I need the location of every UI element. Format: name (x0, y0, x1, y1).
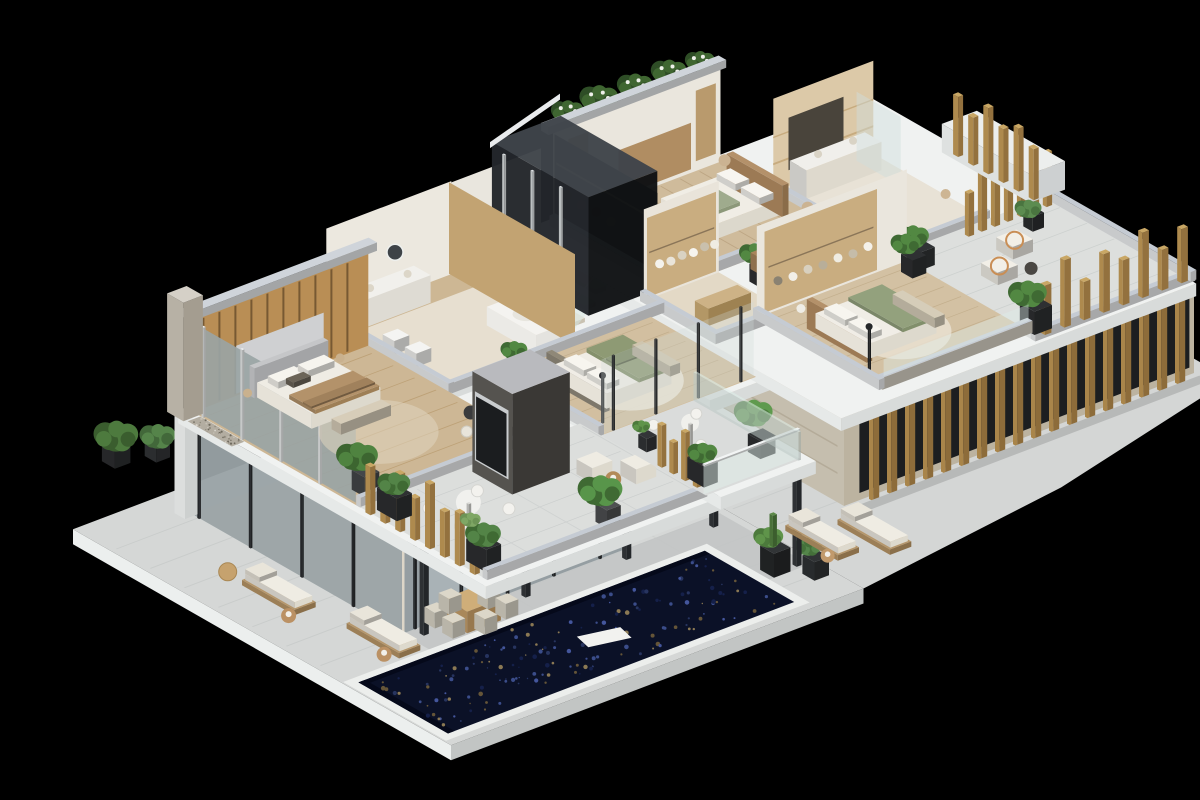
pool-ripples (753, 609, 757, 613)
parapet-plants-2 (601, 91, 605, 95)
bedroom-4-plant (909, 241, 919, 251)
pool-ripples (624, 645, 629, 650)
parapet-plants-4 (671, 65, 675, 69)
drum-table (719, 154, 731, 166)
terrace-palm (605, 486, 620, 501)
pool-ripples (439, 669, 441, 671)
cactus-tall (770, 514, 773, 547)
terrace-slats (1084, 280, 1091, 321)
pool-ripples (558, 631, 560, 633)
pool-ripples (579, 673, 581, 675)
pool-ripples (576, 664, 579, 667)
bedroom-4-clothes-4 (819, 261, 828, 270)
facade-louvers (1107, 320, 1113, 412)
terrace-slats (1123, 258, 1130, 306)
pebbles (205, 423, 207, 425)
pool-ripples (625, 610, 630, 615)
pool-ripples (474, 649, 478, 653)
bedroom-4-clothes-5 (834, 253, 843, 262)
pool-ripples (734, 580, 737, 583)
pebbles (208, 429, 210, 431)
glass-left-frames (249, 457, 251, 549)
nightstand-2 (336, 353, 345, 362)
pool-ripples (519, 677, 520, 678)
pool-ripples (765, 595, 768, 598)
facade-louvers (905, 395, 909, 487)
bedroom-4-clothes-2 (789, 272, 798, 281)
pebbles (214, 426, 216, 428)
terrace-slats (1080, 280, 1084, 321)
pebbles (208, 424, 210, 426)
pool-ripples (525, 654, 526, 655)
terrace-end-slats (1034, 147, 1039, 200)
upper-terrace-slats (445, 510, 450, 558)
pool-ripples (615, 612, 618, 615)
pool-ripples (452, 674, 455, 677)
pool-ripples (426, 683, 429, 686)
pool-ripples (691, 561, 694, 564)
pool-ripples (546, 651, 550, 655)
pool-ripples (589, 667, 593, 671)
pool-ripples (722, 593, 724, 595)
terrace-slats (1103, 252, 1110, 313)
pool-ripples (581, 627, 583, 629)
pebbles (230, 440, 231, 441)
pool-ripples (444, 698, 447, 701)
balcony-slats (669, 441, 673, 475)
pebbles (199, 424, 201, 426)
pool-ripples (636, 606, 639, 609)
pool-ripples (639, 652, 642, 655)
bedroom-3-headboard (782, 183, 788, 217)
terrace-plant (1032, 290, 1045, 303)
terrace-slats-2 (965, 191, 969, 236)
pebbles (193, 421, 195, 423)
terrace-end-slats (1014, 126, 1019, 192)
pool-ripples (554, 640, 556, 642)
pebbles (209, 427, 211, 429)
pebbles (225, 441, 227, 443)
pool-ripples (773, 603, 775, 605)
balcony-slats (674, 441, 679, 474)
bedroom-3-niche-2 (696, 83, 716, 161)
pool-ripples (659, 644, 662, 647)
pool-ripples (485, 654, 489, 658)
facade-louvers (927, 389, 933, 481)
pool-ripples (532, 672, 536, 676)
terrace-plant (1010, 289, 1024, 303)
bedroom-2-glass-frames (739, 307, 741, 383)
bedroom-4-plant (892, 241, 902, 251)
cactus-tall (773, 514, 777, 547)
pebbles (220, 428, 221, 429)
pool-ripples (633, 602, 636, 605)
pebbles (205, 419, 207, 421)
pebbles (219, 429, 220, 430)
pool-ripples (704, 565, 706, 567)
pool-ripples (467, 695, 470, 698)
pebbles (200, 418, 202, 420)
stone-chimney (183, 295, 203, 421)
pool-ripples (469, 703, 470, 704)
pool-ripples (432, 713, 435, 716)
glass-left-frames (354, 516, 356, 607)
terrace-plant-3 (1031, 206, 1040, 215)
pool-ripples (527, 678, 528, 679)
pool-ripples (495, 673, 497, 675)
glass-left-frames (199, 428, 201, 519)
pool-ripples (453, 666, 457, 670)
parapet-plants-2 (589, 92, 593, 96)
balcony-slats (658, 423, 662, 467)
upper-terrace-slats (365, 464, 370, 515)
vanity-basin-2 (404, 270, 412, 278)
terrace-end-slats (988, 106, 993, 174)
pool-ripples (545, 663, 550, 668)
nightstand (243, 389, 252, 398)
facade-louvers (1031, 347, 1035, 439)
pool-ripples (500, 648, 502, 650)
facade-louvers (887, 402, 891, 494)
pool-ripples (734, 617, 736, 619)
closet-clothes-3 (678, 251, 687, 260)
garden-shrub (121, 432, 136, 447)
pool-ripples (669, 602, 672, 605)
balcony-slats (662, 424, 667, 468)
facade-louvers (923, 388, 927, 480)
upper-terrace-slats (440, 509, 445, 557)
facade-louvers (873, 409, 879, 501)
facade-louvers (1143, 306, 1149, 398)
pool-ripples (567, 649, 571, 653)
bedroom-4-clothes-6 (849, 249, 858, 258)
cactus (755, 534, 765, 544)
garden-shrub-2 (142, 432, 154, 444)
facade-louvers (1067, 334, 1071, 426)
parapet-plants (569, 105, 573, 109)
balcony-table-stem (690, 424, 693, 445)
pool-ripples (547, 673, 551, 677)
balcony-plant (689, 450, 699, 460)
parapet-plants-4 (660, 66, 664, 70)
balcony-slats (681, 430, 685, 481)
terrace-side-table (1025, 262, 1038, 275)
upper-terrace-slats (415, 497, 420, 541)
pool-ripples (699, 617, 703, 621)
pool-ripples (678, 577, 681, 580)
parapet-plants-3 (637, 78, 641, 82)
corner-pier (175, 412, 186, 519)
pool-ripples (743, 590, 747, 594)
pool-ripples (504, 680, 507, 683)
pebbles (227, 436, 229, 438)
terrace-slats (1060, 258, 1064, 328)
pool-ripples (663, 627, 666, 630)
closet-clothes-5 (700, 242, 709, 251)
facade-louvers (981, 368, 987, 460)
pool-ripples (708, 579, 710, 581)
balcony-plant (706, 450, 716, 460)
pool-ripples (609, 602, 611, 604)
pool-ripples (681, 592, 685, 596)
facade-louvers (1071, 334, 1077, 426)
bedroom-1-palm (339, 452, 354, 467)
pool-ripples (484, 708, 486, 710)
pool-ripples (472, 656, 475, 659)
parapet-plants (559, 106, 563, 110)
facade-louvers (1049, 341, 1053, 433)
pool-ripples (718, 591, 722, 595)
pool-ripples (393, 691, 397, 695)
pool-ripples (528, 643, 530, 645)
pebbles (234, 442, 236, 444)
terrace-slats (1064, 258, 1071, 328)
bedroom-4-clothes (774, 276, 783, 285)
pool-ripples (716, 601, 718, 603)
pebbles (238, 439, 239, 440)
glass-left-frames (300, 486, 302, 578)
pool-ripples (674, 625, 678, 629)
bath-2-basin (814, 150, 822, 158)
facade-louvers (1139, 306, 1143, 398)
bedroom-4-stub-wall (879, 378, 885, 390)
pool-ripples (596, 655, 599, 658)
facade-louvers (1053, 341, 1059, 433)
terrace-slats (1158, 248, 1162, 291)
side-table-2-deco (381, 650, 387, 656)
pool-ripples (581, 643, 585, 647)
pebbles (224, 436, 226, 438)
pool-ripples (685, 569, 687, 571)
terrace-palm (580, 486, 596, 502)
pool-ripples (659, 600, 661, 602)
pool-ripples (602, 594, 606, 598)
facade-louvers (1175, 293, 1179, 385)
pool-ripples (480, 686, 484, 690)
pool-ripples (426, 714, 430, 718)
bath-2-stool (941, 189, 951, 199)
pool-ripples (489, 646, 491, 648)
terrace-end-slats (953, 94, 958, 157)
upper-terrace-plant-2 (487, 531, 499, 543)
pool-ripples (481, 661, 483, 663)
pool-ripples (703, 613, 705, 615)
facade-louvers (963, 375, 969, 467)
pool-ripples (710, 586, 714, 590)
isometric-villa-floorplan-render (0, 0, 1200, 800)
pool-ripples (712, 569, 714, 571)
facade-louvers (1089, 327, 1095, 419)
pool-ripples (688, 628, 691, 631)
pool-ripples (485, 701, 488, 704)
pool-ripples (484, 644, 486, 646)
pool-ripples (444, 692, 446, 694)
pebbles (222, 437, 224, 439)
glass-left-frames (197, 427, 199, 519)
pebbles (230, 443, 232, 445)
pebbles (238, 440, 240, 442)
pool-ripples (585, 658, 587, 660)
bedroom-2-glass-frames (612, 355, 614, 431)
bedroom-4-clothes-3 (804, 265, 813, 274)
pool-ripples (721, 584, 723, 586)
pool-ripples (488, 661, 490, 663)
facade-louvers (1013, 354, 1017, 446)
pool-ripples (687, 591, 690, 594)
pool-ripples (487, 667, 488, 668)
pool-ripples (518, 683, 520, 685)
pool-ripples (535, 643, 538, 646)
facade-louvers (941, 382, 945, 474)
pool-ripples (702, 603, 703, 604)
pool-ripples (685, 600, 690, 605)
upper-terrace-grass (473, 518, 480, 525)
pool-ripples (542, 649, 544, 651)
pool-ripples (449, 677, 453, 681)
pool-ripples (434, 698, 438, 702)
terrace-end-slats (1019, 127, 1024, 192)
facade-louvers (869, 409, 873, 501)
glass-left-frames (302, 487, 304, 578)
upper-terrace-slats (455, 511, 460, 567)
bedroom-2-glass-frames (741, 307, 743, 383)
facade-louvers (1035, 347, 1041, 439)
pool-ripples (526, 633, 530, 637)
bedroom-2-glass-frames (656, 339, 658, 415)
pool-ripples (633, 588, 637, 592)
stone-chimney (167, 293, 183, 421)
pool-ripples (693, 628, 695, 630)
pool-ripples (544, 682, 546, 684)
pool-ripples (440, 665, 443, 668)
bedroom-1-mullions (240, 349, 242, 440)
pool-ripples (574, 671, 577, 674)
wood-wall-grain (331, 269, 333, 358)
pebbles (227, 441, 229, 443)
pool-ripples (438, 718, 441, 721)
facade-louvers (891, 402, 897, 494)
pool-ripples (651, 634, 655, 638)
pool-ripples (494, 639, 496, 641)
wood-wall-grain (347, 263, 349, 352)
upper-terrace-grass (461, 517, 468, 524)
bedroom-2-plant (502, 347, 511, 356)
pool-ripples (541, 674, 543, 676)
bedroom-4-side-table (796, 304, 805, 313)
pool-ripples (512, 664, 515, 667)
terrace-end-slats (999, 126, 1004, 183)
balcony-cactus (633, 424, 639, 430)
parapet-plants-3 (626, 80, 630, 84)
pool-ripples (419, 700, 422, 703)
upper-terrace-slats (425, 482, 430, 550)
pebbles (214, 430, 216, 432)
pool-ripples (592, 666, 594, 668)
facade-louvers (1121, 313, 1125, 405)
pool-ripples (460, 720, 462, 722)
glass-left-frames (352, 516, 354, 608)
bedroom-4-clothes-7 (864, 242, 873, 251)
facade-louvers (909, 395, 915, 487)
pool-ripples (695, 564, 698, 567)
terrace-end-slats (968, 115, 973, 166)
glass-left-frames (251, 457, 253, 548)
pool-ripples (398, 692, 401, 695)
facade-louvers (1017, 354, 1023, 446)
facade-louvers (999, 361, 1005, 453)
facade-louvers (1157, 299, 1161, 391)
pool-ripples (382, 681, 384, 683)
bedroom-1-mullions (204, 327, 206, 418)
pool-ripples (427, 705, 429, 707)
pool-ripples (638, 608, 641, 611)
terrace-slats (1138, 230, 1142, 298)
parapet-plants-5 (701, 55, 705, 59)
pool-ripples (591, 604, 595, 608)
pool-ripples (453, 715, 455, 717)
balcony-glass-side (799, 431, 802, 460)
pebbles (218, 429, 219, 430)
pebbles (228, 438, 230, 440)
pool-ripples (620, 653, 622, 655)
pebbles (219, 433, 220, 434)
pool-ripples (705, 558, 707, 560)
terrace-slats (1119, 258, 1123, 305)
facade-louvers (1085, 327, 1089, 419)
pool-ripples (381, 686, 386, 691)
pool-ripples (478, 692, 483, 697)
pool-ripples (685, 624, 687, 626)
pool-ripples (655, 599, 658, 602)
terrace-slats-2 (969, 192, 975, 237)
hall-plant (741, 250, 751, 260)
pool-ripples (513, 646, 516, 649)
pool-ripples (445, 675, 447, 677)
facade-louvers (1125, 313, 1131, 405)
bath-2-basin-2 (849, 137, 857, 145)
parapet-plants-5 (692, 56, 696, 60)
pool-ripples (544, 646, 547, 649)
bedroom-2-glass-frames (654, 339, 656, 415)
pool-ripples (569, 620, 573, 624)
pebbles (233, 437, 235, 439)
pebbles (200, 426, 201, 427)
terrace-slats-2 (978, 168, 982, 232)
garden-shrub-2 (161, 433, 173, 445)
garden-shrub (96, 431, 112, 447)
pool-ripples (465, 667, 469, 671)
pool-ripples (552, 662, 555, 665)
facade-louvers (945, 382, 951, 474)
terrace-end-slats (1029, 146, 1034, 200)
balcony-cactus (643, 425, 649, 431)
pool-ripples (583, 665, 587, 669)
pebbles (230, 434, 232, 436)
upper-terrace-plant (397, 481, 408, 492)
bedroom-2-glass-frames (613, 355, 615, 431)
pool-ripples (711, 599, 716, 604)
pool-ripples (505, 678, 507, 680)
pool-ripples (652, 648, 654, 650)
pool-ripples (442, 723, 445, 726)
pool-ripples (592, 656, 596, 660)
pool-ripples (397, 677, 399, 679)
closet-clothes-4 (689, 248, 698, 257)
side-table-deco (286, 611, 292, 617)
terrace-slats (1162, 248, 1169, 291)
pebbles (221, 431, 223, 433)
terrace-end-slats (1004, 127, 1009, 183)
